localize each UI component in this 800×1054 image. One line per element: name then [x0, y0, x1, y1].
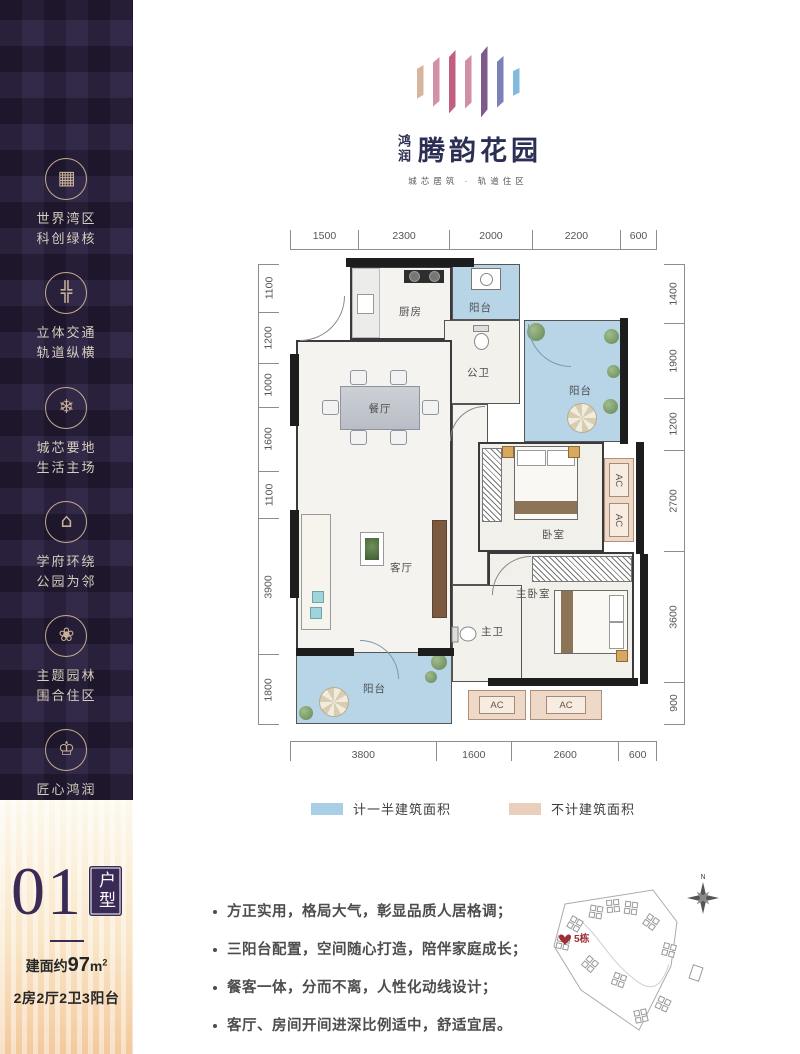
- legend-item: 计一半建筑面积: [311, 799, 451, 818]
- unit-number: 01: [11, 864, 83, 920]
- logo-bar: [497, 56, 504, 108]
- unit-area-unit: m: [90, 958, 102, 974]
- wall: [488, 678, 638, 686]
- dimension-segment: 600: [618, 742, 656, 761]
- wall: [636, 442, 644, 554]
- unit-card: 01 户型 建面约97m2 2房2厅2卫3阳台: [0, 800, 133, 1054]
- ac-label: AC: [613, 473, 624, 486]
- feature-item: 三阳台配置，空间随心打造，陪伴家庭成长；: [212, 941, 542, 959]
- ac-label: AC: [490, 700, 503, 711]
- wall: [296, 648, 354, 656]
- wall: [290, 510, 299, 598]
- chair-icon: [390, 370, 407, 385]
- wall: [418, 648, 454, 656]
- logo-bar: [481, 46, 488, 118]
- dimension-segment: 2700: [664, 450, 684, 551]
- wall: [346, 258, 474, 267]
- sidebar-item-label: 城芯要地生活主场: [36, 438, 96, 478]
- chair-icon: [322, 400, 339, 415]
- dimension-segment: 2600: [511, 742, 618, 761]
- room-label-balcony-top: 阳台: [469, 300, 492, 315]
- nightstand: [616, 650, 628, 662]
- ac-label: AC: [559, 700, 572, 711]
- divider: [50, 940, 84, 942]
- nightstand: [568, 446, 580, 458]
- dimension-segment: 1400: [664, 264, 684, 323]
- dimension-segment: 1100: [259, 264, 279, 312]
- toilet-icon: [452, 627, 477, 643]
- sofa: [301, 514, 331, 630]
- room-label-kitchen: 厨房: [399, 304, 422, 319]
- feature-list: 方正实用，格局大气，彰显品质人居格调；三阳台配置，空间随心打造，陪伴家庭成长；餐…: [212, 903, 542, 1054]
- legend-swatch: [311, 803, 343, 815]
- legend: 计一半建筑面积不计建筑面积: [290, 799, 656, 818]
- site-buildings: [556, 899, 703, 1023]
- room-label-master-bedroom: 主卧室: [516, 586, 551, 601]
- umbrella-table-icon: [319, 687, 349, 717]
- sidebar-item: ⌂学府环绕公园为邻: [36, 501, 96, 592]
- flower-icon: ❀: [45, 615, 87, 657]
- room-label-balcony-right: 阳台: [569, 383, 592, 398]
- dimension-segment: 600: [620, 230, 656, 249]
- chair-icon: [350, 430, 367, 445]
- feature-item: 客厅、房间开间进深比例适中，舒适宜居。: [212, 1017, 542, 1035]
- compass-n-label: N: [700, 874, 705, 881]
- legend-item: 不计建筑面积: [509, 799, 635, 818]
- bed: [554, 590, 628, 654]
- building-icon: ▦: [45, 158, 87, 200]
- wall: [640, 554, 648, 684]
- unit-area-value: 97: [68, 954, 90, 976]
- chair-icon: [350, 370, 367, 385]
- logo-bar: [417, 65, 424, 99]
- ac-platform-right: AC AC: [604, 458, 634, 542]
- wall: [620, 318, 628, 444]
- transit-cross-icon: ╬: [45, 272, 87, 314]
- ac-unit: AC: [546, 696, 586, 714]
- marker-label: 5栋: [574, 932, 590, 945]
- sidebar-item: ▦世界湾区科创绿核: [36, 158, 96, 249]
- feature-item: 方正实用，格局大气，彰显品质人居格调；: [212, 903, 542, 921]
- room-label-balcony-bottom: 阳台: [363, 681, 386, 696]
- sidebar-item-label: 立体交通轨道纵横: [36, 323, 96, 363]
- logo-bar: [465, 55, 472, 109]
- ac-unit: AC: [609, 503, 629, 537]
- sidebar-item: ╬立体交通轨道纵横: [36, 272, 96, 363]
- unit-layout: 2房2厅2卫3阳台: [0, 988, 133, 1008]
- dimension-segment: 1600: [259, 407, 279, 470]
- poster: ▦世界湾区科创绿核╬立体交通轨道纵横❄城芯要地生活主场⌂学府环绕公园为邻❀主题园…: [0, 0, 800, 1054]
- sidebar-item-label: 学府环绕公园为邻: [36, 552, 96, 592]
- unit-area-sup: 2: [102, 957, 107, 967]
- floor-plan: 厨房 阳台 公卫 阳台 餐厅: [290, 258, 656, 728]
- sidebar: ▦世界湾区科创绿核╬立体交通轨道纵横❄城芯要地生活主场⌂学府环绕公园为邻❀主题园…: [0, 0, 133, 800]
- wall: [290, 354, 299, 426]
- wardrobe: [532, 556, 632, 582]
- toilet-icon: [473, 325, 489, 350]
- dimension-segment: 2200: [532, 230, 620, 249]
- logo-bars-icon: [417, 44, 520, 120]
- ac-platform-bottom-1: AC: [468, 690, 526, 720]
- plant-icon: [607, 365, 620, 378]
- room-label-dining: 餐厅: [369, 401, 392, 416]
- wardrobe: [482, 448, 502, 522]
- plant-icon: [603, 399, 618, 414]
- dimension-segment: 3900: [259, 518, 279, 654]
- dimension-segment: 1500: [290, 230, 358, 249]
- chair-icon: [390, 430, 407, 445]
- dimension-segment: 900: [664, 682, 684, 724]
- dimension-segment: 1200: [664, 398, 684, 450]
- room-bedroom: 卧室: [478, 442, 604, 552]
- dimension-chain-top: 1500230020002200600: [290, 230, 657, 250]
- brand-tagline: 城芯居筑 · 轨道住区: [408, 175, 528, 187]
- ac-label: AC: [613, 513, 624, 526]
- room-label-living: 客厅: [390, 560, 413, 575]
- unit-number-row: 01 户型: [0, 864, 133, 920]
- kitchen-sink: [357, 294, 374, 314]
- dimension-segment: 1800: [259, 654, 279, 724]
- stove-icon: [404, 270, 444, 283]
- sidebar-item: ❀主题园林围合住区: [36, 615, 96, 706]
- dimension-segment: 2300: [358, 230, 449, 249]
- legend-swatch: [509, 803, 541, 815]
- ac-unit: AC: [609, 463, 629, 497]
- dimension-segment: 2000: [449, 230, 532, 249]
- dimension-segment: 3600: [664, 551, 684, 682]
- logo-bar: [449, 50, 456, 114]
- dining-table: 餐厅: [340, 386, 420, 430]
- unit-area: 建面约97m2: [0, 954, 133, 977]
- plant-icon: [431, 654, 447, 670]
- brand-name-row: 鸿润 腾韵花园: [394, 129, 542, 168]
- sidebar-item-label: 世界湾区科创绿核: [36, 209, 96, 249]
- dimension-segment: 1600: [436, 742, 511, 761]
- dimension-segment: 1100: [259, 471, 279, 519]
- logo-bar: [433, 57, 440, 107]
- umbrella-table-icon: [567, 403, 597, 433]
- room-guest-bath: 公卫: [444, 320, 520, 404]
- dimension-segment: 1900: [664, 323, 684, 398]
- plant-icon: [604, 329, 619, 344]
- nightstand: [502, 446, 514, 458]
- sidebar-item-label: 主题园林围合住区: [36, 666, 96, 706]
- brand-name: 腾韵花园: [418, 129, 542, 168]
- logo-bar: [513, 68, 520, 96]
- dimension-segment: 1200: [259, 312, 279, 363]
- brand-logo: 鸿润 腾韵花园 城芯居筑 · 轨道住区: [368, 44, 568, 187]
- room-kitchen: 厨房: [350, 266, 452, 340]
- dimension-chain-right: 14001900120027003600900: [664, 264, 685, 725]
- unit-type-badge: 户型: [89, 866, 122, 916]
- school-icon: ⌂: [45, 501, 87, 543]
- washing-machine-icon: [471, 268, 501, 290]
- site-plan: N 5栋: [543, 864, 727, 1046]
- plant-icon: [425, 671, 437, 683]
- dimension-chain-bottom: 380016002600600: [290, 741, 657, 761]
- rug-plant-decor: [360, 532, 384, 566]
- plant-icon: [299, 706, 313, 720]
- sidebar-items: ▦世界湾区科创绿核╬立体交通轨道纵横❄城芯要地生活主场⌂学府环绕公园为邻❀主题园…: [0, 0, 133, 844]
- chair-icon: [422, 400, 439, 415]
- sidebar-item: ❄城芯要地生活主场: [36, 387, 96, 478]
- snowflake-icon: ❄: [45, 387, 87, 429]
- dimension-chain-left: 1100120010001600110039001800: [258, 264, 279, 725]
- room-label-guest-bath: 公卫: [467, 365, 490, 380]
- door-arc: [300, 296, 345, 341]
- ac-unit: AC: [479, 696, 515, 714]
- legend-label: 计一半建筑面积: [353, 799, 451, 818]
- brand-name-small: 鸿润: [394, 134, 413, 164]
- room-living-dining: 餐厅 客厅: [296, 340, 452, 655]
- room-balcony-top: 阳台: [452, 264, 520, 320]
- legend-label: 不计建筑面积: [551, 799, 635, 818]
- ac-platform-bottom-2: AC: [530, 690, 602, 720]
- feature-item: 餐客一体，分而不离，人性化动线设计；: [212, 979, 542, 997]
- compass-icon: N: [687, 874, 719, 914]
- dimension-segment: 1000: [259, 363, 279, 408]
- tv-cabinet: [432, 520, 447, 618]
- crown-icon: ♔: [45, 729, 87, 771]
- room-label-bedroom: 卧室: [542, 527, 565, 542]
- unit-area-prefix: 建面约: [26, 958, 68, 974]
- room-master-bath: 主卫: [452, 585, 522, 682]
- dimension-segment: 3800: [290, 742, 436, 761]
- room-label-master-bath: 主卫: [481, 624, 504, 639]
- unit-location-marker: 5栋: [559, 932, 590, 945]
